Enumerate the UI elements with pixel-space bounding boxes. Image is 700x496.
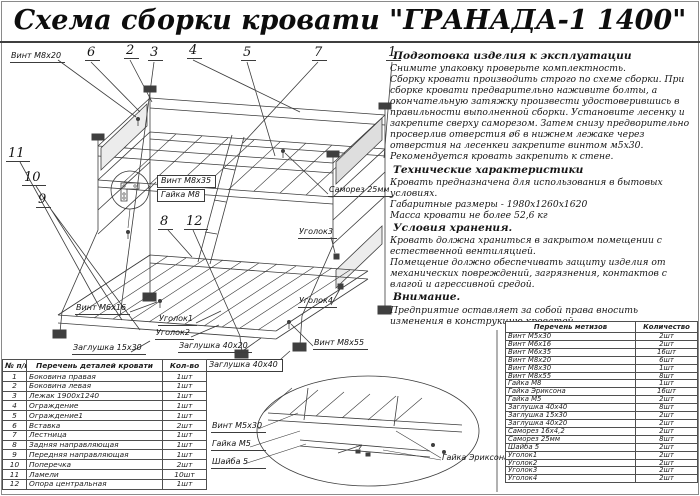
table-cell: 2шт (636, 459, 698, 467)
table-cell: 1шт (636, 364, 698, 372)
table-row: Заглушка 40х202шт (506, 419, 698, 427)
table-cell: Вставка (27, 420, 163, 430)
table-row: Саморез 25мм8шт (506, 435, 698, 443)
table-cell: Гайка М5 (506, 396, 636, 404)
table-cell: 1шт (163, 372, 207, 382)
table-cell: Гайка М8 (506, 380, 636, 388)
table-cell: 8шт (636, 404, 698, 412)
label-vint-m8x55: Винт М8х55 (313, 339, 368, 350)
table-cell: 6шт (636, 356, 698, 364)
label-vint-m8x20: Винт М8х20 (10, 52, 65, 63)
label-gaika-m8: Гайка М8 (157, 189, 205, 202)
table-cell: Ограждение (27, 401, 163, 411)
table-cell: Заглушка 40х20 (506, 419, 636, 427)
underside-detail (244, 376, 479, 486)
label-gaika-m5: Гайка М5 (211, 440, 266, 451)
table-cell: 9 (3, 450, 27, 460)
table-cell: 2шт (636, 451, 698, 459)
table-cell: 1шт (163, 411, 207, 421)
table-row: Гайка Эриксона16шт (506, 388, 698, 396)
callout-12: 12 (184, 215, 208, 230)
table-cell: 4 (3, 401, 27, 411)
table-cell: Опора центральная (27, 479, 163, 489)
table-cell: 1шт (163, 479, 207, 489)
table-cell: Винт М5х30 (506, 333, 636, 341)
table-row: Заглушка 40х408шт (506, 404, 698, 412)
table-cell: Лестница (27, 430, 163, 440)
table-row: 4Ограждение1шт (3, 401, 207, 411)
table-row: 6Вставка2шт (3, 420, 207, 430)
label-vint-m6x16: Винт М6х16 (75, 304, 130, 315)
table-cell: Уголок1 (506, 451, 636, 459)
table-cell: Шайба 5 (506, 443, 636, 451)
table-cell: 1шт (163, 401, 207, 411)
table-cell: 2 (3, 381, 27, 391)
column-header: № п/п (3, 360, 27, 372)
table-cell: 6 (3, 420, 27, 430)
table-cell: Задняя направляющая (27, 440, 163, 450)
bracket-detail-circle (111, 171, 149, 228)
table-row: Гайка М81шт (506, 380, 698, 388)
table-row: Уголок32шт (506, 467, 698, 475)
label-shayba-5: Шайба 5 (211, 458, 266, 469)
table-row: Винт М6х162шт (506, 340, 698, 348)
callout-4: 4 (187, 44, 202, 59)
table-row: Винт М8х301шт (506, 364, 698, 372)
label-samorez-25mm: Саморез 25мм (328, 186, 393, 197)
table-cell: 2шт (636, 443, 698, 451)
ladder (198, 135, 244, 264)
table-cell: 8 (3, 440, 27, 450)
table-cell: 10шт (163, 469, 207, 479)
table-header-row: № п/п Перечень деталей кровати Кол-во (3, 360, 207, 372)
table-header-row: Перечень метизов Количество (506, 322, 698, 333)
page-title: Схема сборки кровати "ГРАНАДА-1 1400" (0, 0, 700, 43)
table-row: 7Лестница1шт (3, 430, 207, 440)
table-cell: 1шт (163, 430, 207, 440)
table-row: Винт М5х302шт (506, 333, 698, 341)
callout-5: 5 (241, 46, 256, 61)
callout-leaders (20, 60, 392, 336)
label-zaglushka-40x40: Заглушка 40х40 (205, 359, 283, 372)
table-cell: 8шт (636, 372, 698, 380)
callout-1: 1 (386, 46, 401, 61)
table-cell: Уголок4 (506, 475, 636, 483)
column-header: Количество (636, 322, 698, 333)
table-cell: Поперечка (27, 460, 163, 470)
table-cell: Винт М8х20 (506, 356, 636, 364)
table-cell: 1шт (163, 391, 207, 401)
table-cell: 2шт (636, 396, 698, 404)
table-row: 2Боковина левая1шт (3, 381, 207, 391)
label-vint-m8x35: Винт М8х35 (157, 175, 216, 188)
instructions-heading-storage: Условия хранения. (390, 222, 690, 235)
label-ugolok2: Уголок2 (155, 329, 194, 340)
table-cell: 2шт (163, 460, 207, 470)
parts-table: № п/п Перечень деталей кровати Кол-во 1Б… (2, 359, 207, 490)
table-cell: 1шт (163, 450, 207, 460)
table-row: 11Ламели10шт (3, 469, 207, 479)
table-cell: 1шт (163, 440, 207, 450)
table-row: Заглушка 15х302шт (506, 412, 698, 420)
instructions-heading-preparation: Подготовка изделия к эксплуатации (390, 50, 690, 63)
table-cell: 1шт (636, 380, 698, 388)
callout-6: 6 (85, 46, 100, 61)
table-cell: 16шт (636, 388, 698, 396)
callout-3: 3 (148, 46, 163, 61)
table-row: Уголок12шт (506, 451, 698, 459)
instructions-text-specs: Кровать предназначена для использования … (390, 177, 690, 221)
table-cell: 2шт (636, 340, 698, 348)
callout-8: 8 (158, 215, 173, 230)
table-cell: 2шт (163, 420, 207, 430)
callout-10: 10 (22, 171, 46, 186)
table-row: 12Опора центральная1шт (3, 479, 207, 489)
table-cell: Саморез 25мм (506, 435, 636, 443)
table-cell: 5 (3, 411, 27, 421)
table-cell: 11 (3, 469, 27, 479)
table-cell: 2шт (636, 467, 698, 475)
table-row: 10Поперечка2шт (3, 460, 207, 470)
table-cell: 16шт (636, 348, 698, 356)
table-cell: 7 (3, 430, 27, 440)
table-row: 8Задняя направляющая1шт (3, 440, 207, 450)
table-cell: Заглушка 15х30 (506, 412, 636, 420)
table-cell: Ограждение1 (27, 411, 163, 421)
table-row: Шайба 52шт (506, 443, 698, 451)
table-row: 9Передняя направляющая1шт (3, 450, 207, 460)
table-row: Винт М8х558шт (506, 372, 698, 380)
table-row: Винт М6х3516шт (506, 348, 698, 356)
table-row: 1Боковина правая1шт (3, 372, 207, 382)
table-cell: 8шт (636, 435, 698, 443)
label-ugolok4: Уголок4 (298, 297, 337, 308)
bed-posts (53, 86, 391, 358)
instructions-text-storage: Кровать должна храниться в закрытом поме… (390, 235, 690, 290)
label-zaglushka-40x20: Заглушка 40х20 (178, 342, 252, 353)
column-header: Перечень метизов (506, 322, 636, 333)
table-cell: 2шт (636, 412, 698, 420)
table-row: Уголок42шт (506, 475, 698, 483)
table-cell: 1шт (163, 381, 207, 391)
instructions-text-preparation: Снимите упаковку проверьте комплектность… (390, 63, 690, 162)
label-gaika-eriksona: Гайка Эриксона (442, 454, 509, 463)
instructions-heading-specs: Технические характеристики (390, 164, 690, 177)
label-zaglushka-15x30: Заглушка 15х30 (72, 344, 146, 355)
table-cell: 2шт (636, 333, 698, 341)
table-cell: 2шт (636, 475, 698, 483)
callout-9: 9 (36, 193, 51, 208)
table-cell: Винт М6х35 (506, 348, 636, 356)
table-cell: Винт М6х16 (506, 340, 636, 348)
table-row: Винт М8х206шт (506, 356, 698, 364)
table-cell: Уголок2 (506, 459, 636, 467)
table-cell: Саморез 16х4,2 (506, 427, 636, 435)
callout-2: 2 (124, 44, 139, 59)
table-cell: 2шт (636, 427, 698, 435)
table-cell: Винт М8х30 (506, 364, 636, 372)
label-vint-m5x30: Винт М5х30 (211, 422, 266, 433)
table-cell: 10 (3, 460, 27, 470)
callout-11: 11 (6, 147, 30, 162)
table-row: 3Лежак 1900х12401шт (3, 391, 207, 401)
instructions-panel: Подготовка изделия к эксплуатации Снимит… (390, 50, 690, 328)
column-header: Кол-во (163, 360, 207, 372)
table-cell: Боковина левая (27, 381, 163, 391)
table-row: Саморез 16х4,22шт (506, 427, 698, 435)
table-cell: 1 (3, 372, 27, 382)
table-cell: Лежак 1900х1240 (27, 391, 163, 401)
table-cell: Гайка Эриксона (506, 388, 636, 396)
table-cell: 2шт (636, 419, 698, 427)
table-row: 5Ограждение11шт (3, 411, 207, 421)
label-ugolok1: Уголок1 (158, 315, 197, 326)
table-row: Уголок22шт (506, 459, 698, 467)
instructions-heading-attention: Внимание. (390, 291, 690, 304)
table-cell: Ламели (27, 469, 163, 479)
table-cell: Боковина правая (27, 372, 163, 382)
column-header: Перечень деталей кровати (27, 360, 163, 372)
callout-7: 7 (312, 46, 327, 61)
table-cell: Заглушка 40х40 (506, 404, 636, 412)
table-cell: Уголок3 (506, 467, 636, 475)
table-cell: 12 (3, 479, 27, 489)
table-row: Гайка М52шт (506, 396, 698, 404)
label-ugolok3: Уголок3 (298, 228, 337, 239)
table-cell: Винт М8х55 (506, 372, 636, 380)
table-cell: 3 (3, 391, 27, 401)
table-cell: Передняя направляющая (27, 450, 163, 460)
hardware-table: Перечень метизов Количество Винт М5х302ш… (505, 321, 698, 483)
